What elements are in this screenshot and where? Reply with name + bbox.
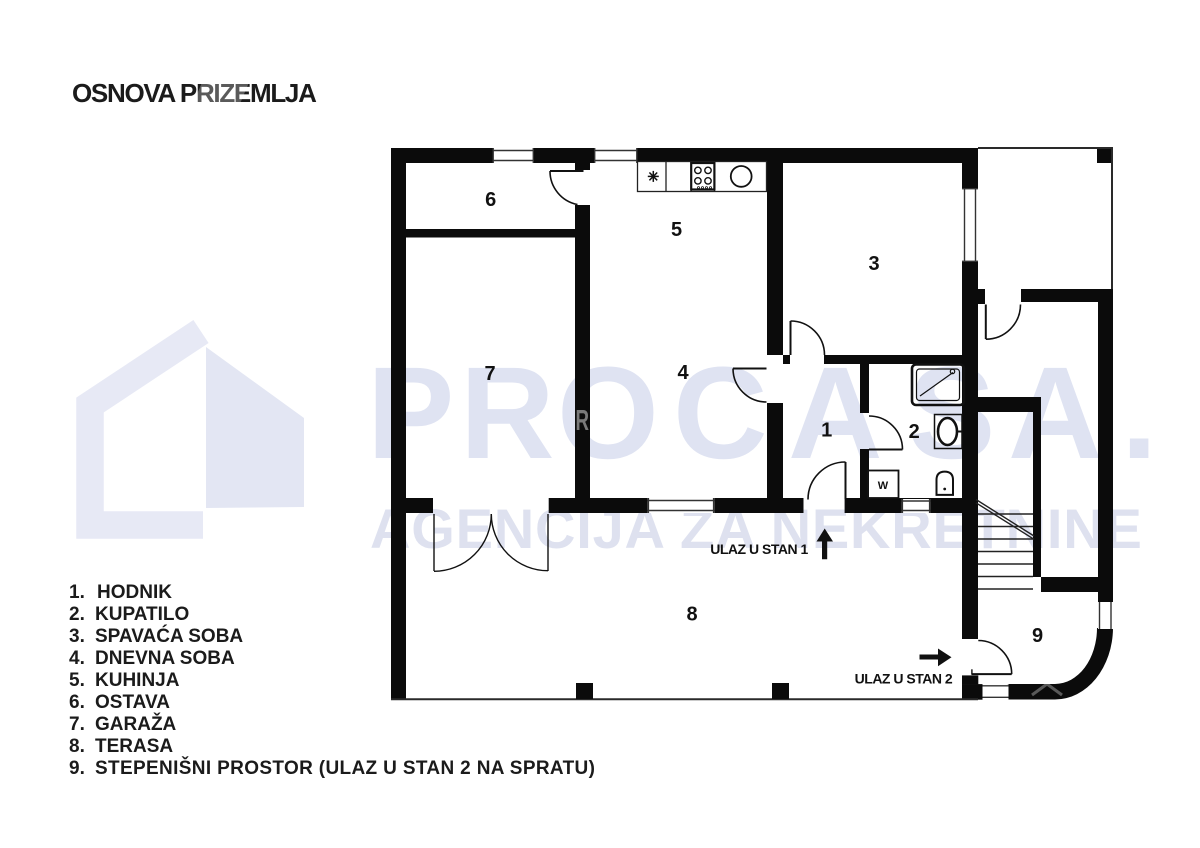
svg-text:STEPENIŠNI PROSTOR (ULAZ U STA: STEPENIŠNI PROSTOR (ULAZ U STAN 2 NA SPR…	[95, 757, 595, 779]
svg-text:KUHINJA: KUHINJA	[95, 670, 180, 691]
svg-text:6.: 6.	[69, 692, 85, 713]
svg-text:8.: 8.	[69, 736, 85, 757]
svg-text:4: 4	[677, 362, 689, 384]
svg-text:8: 8	[686, 604, 697, 626]
svg-text:7.: 7.	[69, 714, 85, 735]
svg-text:DNEVNA SOBA: DNEVNA SOBA	[95, 648, 235, 669]
svg-text:4.: 4.	[69, 648, 85, 669]
svg-text:GARAŽA: GARAŽA	[95, 713, 177, 735]
svg-text:1.: 1.	[69, 582, 85, 603]
svg-text:3: 3	[868, 253, 879, 275]
svg-text:TERASA: TERASA	[95, 736, 173, 757]
svg-text:2: 2	[909, 421, 920, 443]
svg-text:R: R	[576, 405, 590, 437]
svg-text:7: 7	[484, 363, 495, 385]
svg-text:ULAZ U STAN 2: ULAZ U STAN 2	[855, 671, 953, 687]
svg-text:3.: 3.	[69, 626, 85, 647]
svg-text:ULAZ U STAN 1: ULAZ U STAN 1	[710, 541, 808, 557]
svg-text:OSTAVA: OSTAVA	[95, 692, 170, 713]
svg-text:5: 5	[671, 219, 682, 241]
svg-text:9.: 9.	[69, 758, 85, 779]
svg-text:2.: 2.	[69, 604, 85, 625]
svg-text:9: 9	[1032, 625, 1043, 647]
svg-text:HODNIK: HODNIK	[97, 582, 172, 603]
svg-text:W: W	[878, 480, 889, 492]
svg-text:1: 1	[821, 420, 832, 442]
svg-text:5.: 5.	[69, 670, 85, 691]
svg-text:6: 6	[485, 189, 496, 211]
svg-text:SPAVAĆA SOBA: SPAVAĆA SOBA	[95, 625, 243, 647]
svg-text:KUPATILO: KUPATILO	[95, 604, 189, 625]
